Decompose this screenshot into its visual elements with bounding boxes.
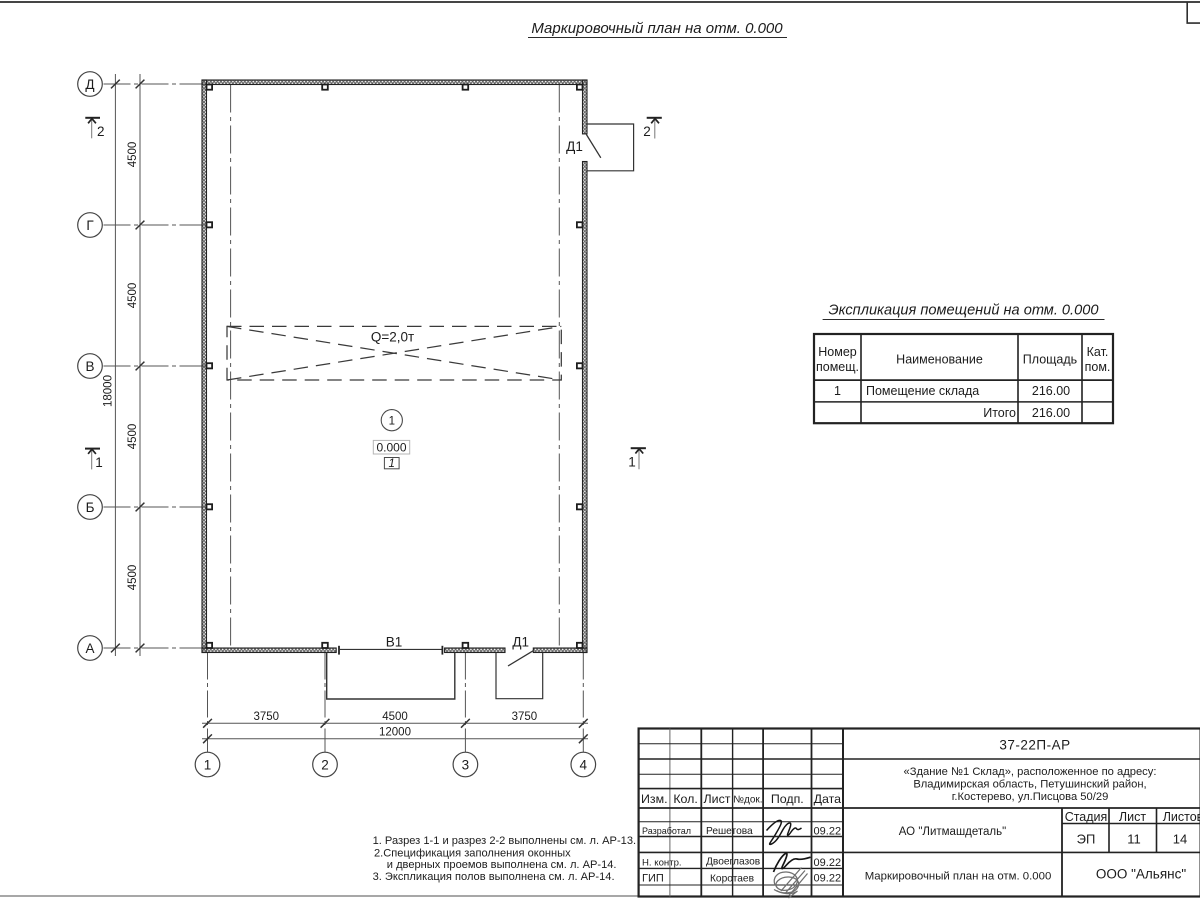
svg-text:2: 2	[643, 124, 651, 139]
svg-text:3. Экспликация полов выполнена: 3. Экспликация полов выполнена см. л. АР…	[373, 871, 615, 883]
svg-text:216.00: 216.00	[1032, 384, 1070, 398]
svg-text:3750: 3750	[512, 711, 538, 723]
svg-text:Коротаев: Коротаев	[710, 873, 754, 884]
svg-text:ГИП: ГИП	[642, 872, 664, 884]
svg-text:Разработал: Разработал	[642, 826, 691, 836]
svg-text:В1: В1	[386, 635, 403, 650]
svg-text:ООО "Альянс": ООО "Альянс"	[1096, 867, 1186, 882]
svg-text:Наименование: Наименование	[896, 353, 983, 367]
svg-text:3: 3	[462, 757, 470, 772]
svg-text:Лист: Лист	[1119, 810, 1146, 824]
svg-text:Стадия: Стадия	[1065, 810, 1108, 824]
svg-text:4500: 4500	[127, 424, 139, 450]
svg-text:А: А	[85, 641, 94, 656]
svg-text:АО "Литмашдеталь": АО "Литмашдеталь"	[899, 826, 1006, 838]
svg-text:Кол.: Кол.	[673, 792, 698, 806]
svg-text:12000: 12000	[379, 726, 411, 738]
svg-text:11: 11	[1127, 832, 1141, 847]
svg-text:Номер: Номер	[818, 345, 857, 359]
svg-text:2: 2	[321, 757, 329, 772]
svg-text:Подп.: Подп.	[771, 792, 804, 806]
svg-text:1: 1	[204, 757, 212, 772]
svg-text:В: В	[85, 359, 94, 374]
svg-text:Д1: Д1	[512, 634, 529, 649]
svg-text:3750: 3750	[254, 711, 280, 723]
svg-text:Помещение склада: Помещение склада	[866, 384, 979, 398]
svg-text:09.22: 09.22	[814, 825, 842, 837]
svg-text:Маркировочный план на отм. 0.0: Маркировочный план на отм. 0.000	[531, 20, 783, 37]
svg-text:2: 2	[97, 124, 105, 139]
svg-text:1: 1	[95, 455, 103, 470]
svg-text:4: 4	[580, 757, 588, 772]
svg-text:Листов: Листов	[1163, 810, 1200, 824]
svg-text:4500: 4500	[127, 283, 139, 309]
svg-text:1: 1	[389, 415, 395, 427]
svg-text:Б: Б	[86, 500, 95, 515]
svg-text:Д: Д	[85, 77, 94, 92]
svg-text:216.00: 216.00	[1032, 406, 1070, 420]
svg-text:Решетова: Решетова	[706, 826, 753, 837]
svg-text:Экспликация помещений на отм.: Экспликация помещений на отм. 0.000	[829, 303, 1099, 319]
svg-text:4500: 4500	[127, 565, 139, 591]
svg-text:1: 1	[628, 455, 636, 470]
svg-text:Итого: Итого	[983, 406, 1016, 420]
svg-text:Лист: Лист	[704, 792, 731, 806]
svg-text:18000: 18000	[103, 375, 115, 407]
svg-text:1: 1	[834, 384, 841, 398]
svg-text:Площадь: Площадь	[1023, 353, 1077, 367]
svg-text:пом.: пом.	[1085, 360, 1111, 374]
svg-text:и дверных проемов выполнена см: и дверных проемов выполнена см. л. АР-14…	[387, 859, 617, 871]
svg-text:0.000: 0.000	[376, 440, 406, 454]
svg-text:37-22П-АР: 37-22П-АР	[999, 738, 1070, 753]
svg-text:4500: 4500	[382, 711, 408, 723]
svg-text:помещ.: помещ.	[816, 360, 859, 374]
svg-text:Н. контр.: Н. контр.	[642, 857, 682, 868]
svg-text:Двоеглазов: Двоеглазов	[706, 857, 760, 868]
svg-text:№док.: №док.	[733, 795, 762, 806]
svg-text:Д1: Д1	[566, 139, 583, 154]
svg-text:Маркировочный план на отм. 0.0: Маркировочный план на отм. 0.000	[865, 871, 1052, 883]
svg-text:09.22: 09.22	[814, 857, 842, 869]
svg-text:Изм.: Изм.	[641, 792, 668, 806]
svg-text:«Здание №1 Склад», расположенн: «Здание №1 Склад», расположенное по адре…	[904, 766, 1157, 778]
svg-text:г.Костерево, ул.Писцова 50/29: г.Костерево, ул.Писцова 50/29	[952, 791, 1109, 803]
svg-text:Кат.: Кат.	[1087, 345, 1109, 359]
svg-text:Г: Г	[86, 218, 94, 233]
svg-text:Q=2,0т: Q=2,0т	[371, 330, 414, 345]
svg-text:4500: 4500	[127, 142, 139, 168]
svg-text:1: 1	[388, 458, 394, 470]
svg-text:2.Спецификация заполнения окон: 2.Спецификация заполнения оконных	[374, 848, 571, 860]
svg-text:1. Разрез 1-1 и разрез 2-2 вып: 1. Разрез 1-1 и разрез 2-2 выполнены см.…	[373, 835, 636, 847]
svg-text:ЭП: ЭП	[1077, 832, 1096, 847]
svg-text:09.22: 09.22	[814, 873, 842, 885]
svg-text:Дата: Дата	[814, 792, 842, 806]
svg-text:14: 14	[1173, 832, 1187, 847]
svg-text:Владимирская область, Петушинс: Владимирская область, Петушинский район,	[913, 779, 1146, 791]
